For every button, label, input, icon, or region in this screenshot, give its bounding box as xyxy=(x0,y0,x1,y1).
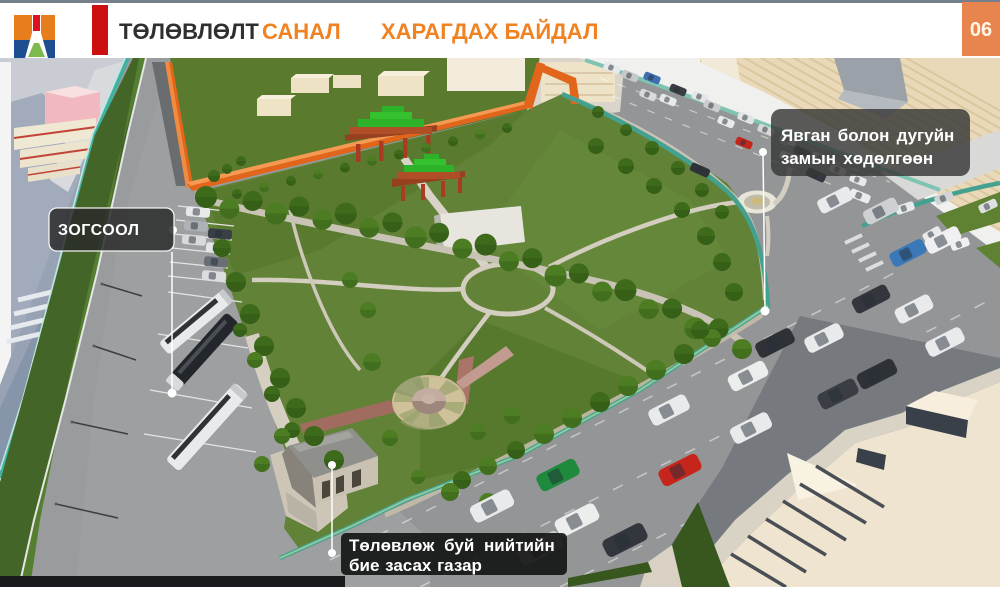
svg-text:Явган болон дугуйн: Явган болон дугуйн xyxy=(781,126,954,145)
svg-text:ХАРАГДАХ БАЙДАЛ: ХАРАГДАХ БАЙДАЛ xyxy=(381,19,598,44)
svg-text:Төлөвлөж буй нийтийн: Төлөвлөж буй нийтийн xyxy=(349,536,555,555)
svg-text:САНАЛ: САНАЛ xyxy=(262,19,341,44)
svg-text:ЗОГСООЛ: ЗОГСООЛ xyxy=(58,222,140,239)
svg-text:замын хөдөлгөөн: замын хөдөлгөөн xyxy=(781,149,933,168)
svg-text:бие засах газар: бие засах газар xyxy=(349,556,482,575)
svg-text:06: 06 xyxy=(970,19,992,41)
svg-text:ТӨЛӨВЛӨЛТ: ТӨЛӨВЛӨЛТ xyxy=(119,19,259,44)
